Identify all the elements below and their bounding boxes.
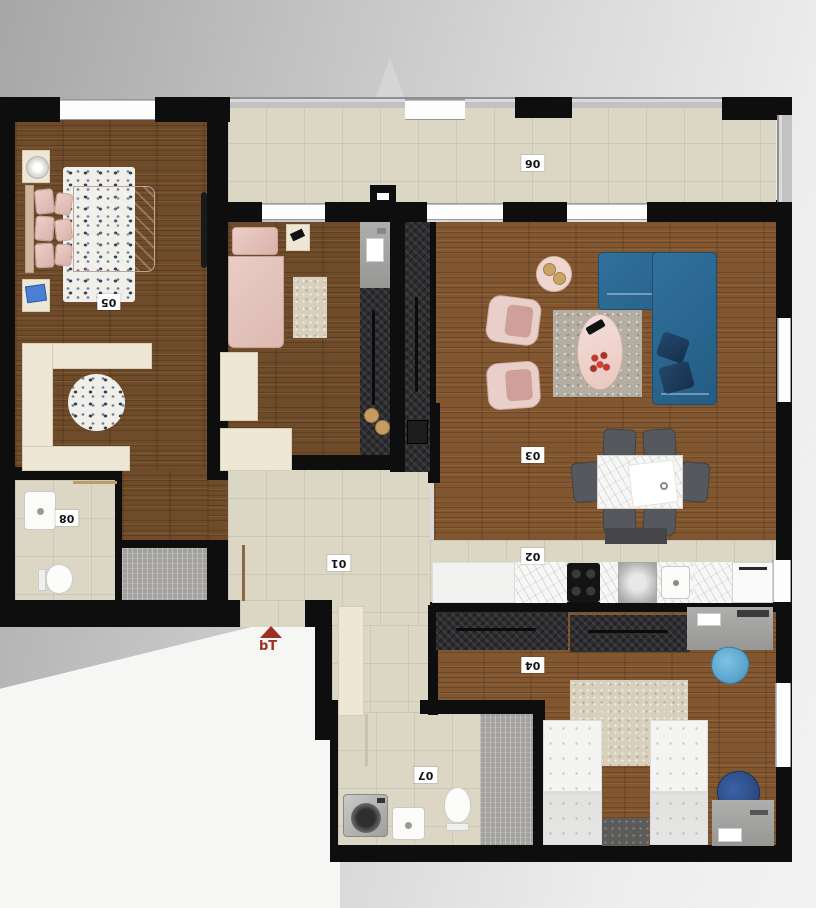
balcony-panel [405, 99, 465, 120]
armchair [484, 294, 542, 347]
bed-duvet [73, 186, 155, 272]
window [775, 683, 791, 767]
kitchen-counter [600, 562, 618, 603]
wall [330, 712, 338, 847]
desk [360, 222, 390, 288]
bedroom-rug [293, 277, 327, 338]
balcony-divider-mark [377, 193, 389, 200]
desk-item [750, 810, 768, 815]
tall-wardrobe [405, 222, 430, 472]
range-hood [618, 562, 657, 603]
table-decor [660, 482, 668, 490]
wall [115, 475, 122, 602]
bed-fold-line [544, 791, 601, 794]
window [567, 203, 647, 220]
sink-drain [673, 580, 679, 586]
printer [407, 420, 428, 444]
wall [122, 540, 207, 548]
dining-table [597, 455, 683, 509]
toilet [38, 563, 74, 596]
wall [0, 97, 60, 122]
entrance-label: bT [259, 639, 277, 654]
room-label-bathroom-lower: 07 [414, 767, 437, 783]
master-bedroom-doorway [207, 480, 228, 540]
bed-blanket-fold [544, 793, 601, 844]
balcony-railing [777, 115, 792, 202]
master-bedroom-passage [122, 470, 207, 542]
washer-drum [351, 803, 381, 833]
armchair-cushion [504, 304, 534, 338]
wall-tv [201, 192, 207, 268]
room-label-balcony: 06 [521, 155, 544, 171]
wall [647, 202, 792, 222]
window [262, 203, 325, 220]
wall [0, 600, 240, 627]
table-lamp [26, 156, 49, 179]
bed-pillow [54, 192, 74, 216]
bathroom-sink [24, 491, 56, 530]
window [427, 203, 503, 220]
books [25, 284, 47, 304]
toilet-tank [446, 823, 469, 831]
window [60, 99, 155, 120]
wall [515, 97, 572, 118]
bed-pillow [34, 243, 54, 269]
wardrobe-handle [372, 310, 375, 405]
balcony-railing [572, 97, 722, 108]
bedside-rug [602, 818, 649, 846]
wall [0, 97, 15, 625]
bed-duvet [228, 256, 284, 348]
cabinet [220, 428, 292, 471]
bed-fold-line [651, 791, 707, 794]
single-bed [228, 223, 284, 348]
desk-item [377, 228, 386, 234]
wall [207, 97, 228, 480]
washing-machine [343, 794, 388, 837]
wardrobe [220, 352, 258, 421]
desk [712, 800, 774, 846]
desk-paper [366, 238, 384, 262]
kitchen-counter [693, 562, 732, 603]
kitchen-mat [605, 528, 667, 544]
kitchen-counter [515, 562, 567, 603]
fridge-handle [739, 567, 767, 570]
bathroom-upper-shower [122, 548, 207, 600]
wardrobe-handle [456, 628, 536, 631]
armchair-cushion [505, 369, 533, 402]
toilet [442, 787, 473, 832]
room-label-kids-bedroom: 04 [521, 657, 544, 673]
room-balcony [228, 105, 776, 205]
side-table [536, 256, 572, 292]
round-rug [68, 374, 125, 431]
wardrobe-handle [415, 297, 418, 392]
wardrobe-handle [588, 630, 668, 633]
desk-unit [22, 446, 130, 471]
kitchen-sink [661, 566, 690, 599]
balcony-railing [230, 97, 515, 108]
room-label-bathroom-upper: 08 [55, 510, 78, 526]
room-label-hallway: 01 [327, 555, 350, 571]
flowers [587, 349, 613, 375]
dining-chair [678, 461, 710, 503]
window [777, 318, 791, 402]
wall [390, 222, 405, 472]
remote [585, 319, 605, 335]
fridge [732, 562, 773, 603]
stool [375, 420, 390, 435]
washer-panel [377, 798, 385, 803]
wardrobe [436, 612, 568, 650]
kitchen-door [772, 560, 791, 602]
wall [503, 202, 567, 222]
bed-headboard [25, 185, 34, 273]
side-table-item [553, 272, 566, 285]
entrance-arrow-icon [260, 626, 282, 638]
bed-pillow [54, 243, 73, 266]
bed-pillow [34, 188, 56, 215]
sink-drain [405, 822, 412, 829]
desk-paper [718, 828, 742, 842]
desk-item [737, 610, 769, 617]
door-leaf [365, 714, 368, 766]
wall [330, 845, 792, 862]
toilet-tank [38, 569, 46, 591]
wardrobe [570, 615, 690, 652]
wall [420, 700, 545, 714]
wall [228, 202, 262, 222]
cooktop [567, 563, 600, 602]
door-leaf [242, 545, 245, 601]
wall [207, 540, 228, 602]
desk [687, 607, 773, 650]
room-label-kitchen: 02 [521, 548, 544, 564]
hall-cabinet [338, 606, 364, 716]
wall [430, 222, 436, 403]
entrance-doorway [240, 600, 305, 627]
armchair [485, 360, 541, 411]
floor-plan-page: { "floorplan": { "rooms": { "hallway": {… [0, 0, 816, 908]
bed-blanket-fold [651, 793, 707, 844]
desk-paper [697, 613, 721, 626]
bed-pillow [232, 227, 278, 255]
double-bed [25, 185, 155, 273]
table-runner [628, 459, 679, 507]
kitchen-cabinet [432, 562, 515, 603]
coffee-table [577, 314, 623, 390]
kitchen-counter [657, 562, 693, 603]
bathroom-lower-shower [480, 712, 533, 845]
kids-bed [543, 720, 602, 845]
toilet-bowl [46, 564, 73, 594]
bed-pillow [54, 218, 74, 242]
room-label-master-bedroom: 05 [97, 294, 120, 310]
bed-pillow [34, 215, 55, 241]
floor-plan: 05 06 03 02 04 01 07 08 bT [0, 0, 816, 908]
sink-drain [37, 508, 44, 515]
room-label-living-room: 03 [521, 447, 544, 463]
kids-bed [650, 720, 708, 845]
toilet-bowl [444, 787, 471, 823]
towel-rail [73, 481, 117, 484]
bathroom-sink [392, 807, 425, 840]
